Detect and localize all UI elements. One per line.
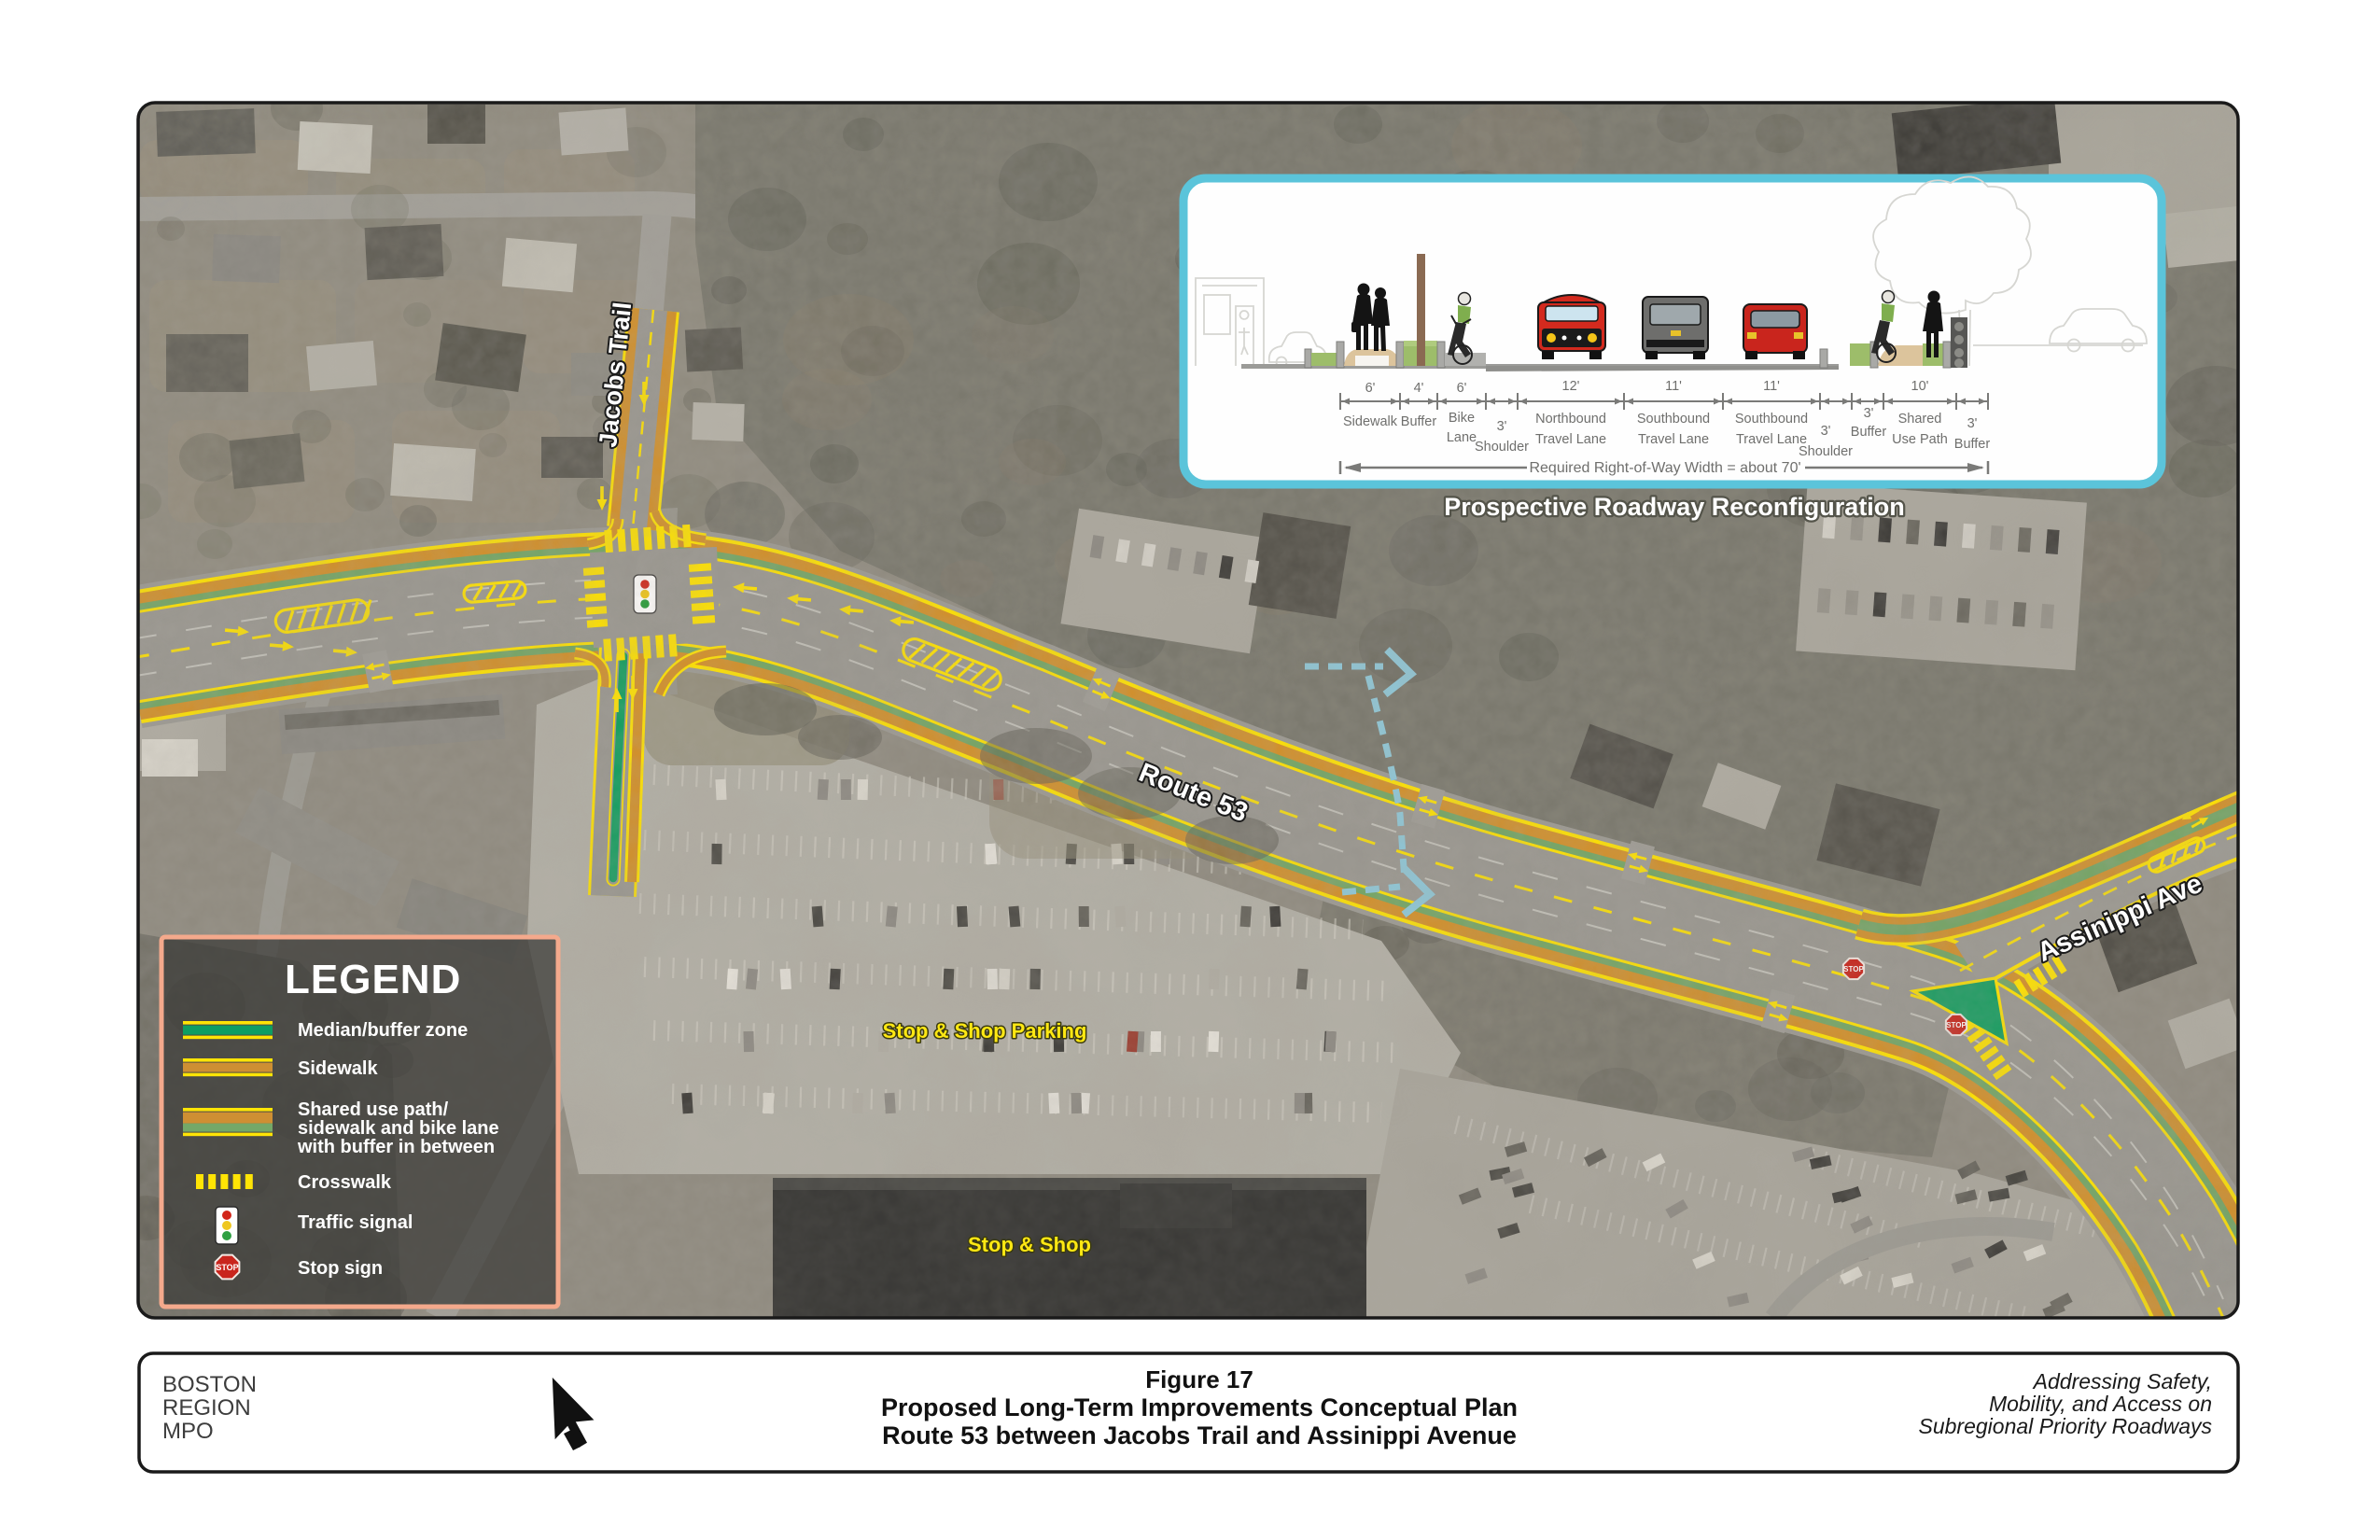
svg-text:Use Path: Use Path bbox=[1892, 432, 1948, 447]
svg-text:LEGEND: LEGEND bbox=[285, 957, 461, 1002]
svg-text:Shared: Shared bbox=[1898, 412, 1942, 427]
svg-text:Shoulder: Shoulder bbox=[1799, 444, 1853, 459]
svg-text:Stop & Shop: Stop & Shop bbox=[968, 1233, 1091, 1256]
svg-text:Northbound: Northbound bbox=[1535, 412, 1606, 427]
svg-text:Mobility, and Access on: Mobility, and Access on bbox=[1989, 1392, 2212, 1416]
svg-text:MPO: MPO bbox=[162, 1419, 214, 1444]
svg-text:Shared use path/: Shared use path/ bbox=[298, 1099, 449, 1120]
svg-text:10': 10' bbox=[1911, 379, 1929, 394]
svg-text:Subregional Priority Roadways: Subregional Priority Roadways bbox=[1919, 1414, 2213, 1438]
svg-text:3': 3' bbox=[1864, 406, 1874, 421]
svg-text:with buffer in between: with buffer in between bbox=[297, 1137, 495, 1157]
svg-text:Southbound: Southbound bbox=[1637, 412, 1710, 427]
svg-text:4': 4' bbox=[1414, 381, 1424, 396]
svg-text:Buffer: Buffer bbox=[1401, 414, 1437, 429]
svg-text:STOP: STOP bbox=[216, 1263, 238, 1272]
svg-text:Lane: Lane bbox=[1447, 430, 1477, 445]
svg-text:Shoulder: Shoulder bbox=[1475, 440, 1529, 455]
svg-text:Median/buffer zone: Median/buffer zone bbox=[298, 1020, 468, 1041]
svg-text:BOSTON: BOSTON bbox=[162, 1372, 257, 1397]
svg-text:6': 6' bbox=[1365, 381, 1376, 396]
svg-text:Bike: Bike bbox=[1449, 411, 1475, 426]
svg-text:Buffer: Buffer bbox=[1851, 425, 1887, 440]
svg-text:12': 12' bbox=[1562, 379, 1580, 394]
svg-text:REGION: REGION bbox=[162, 1395, 251, 1421]
svg-text:Stop sign: Stop sign bbox=[298, 1258, 383, 1279]
svg-text:3': 3' bbox=[1497, 419, 1507, 434]
svg-text:sidewalk and bike lane: sidewalk and bike lane bbox=[298, 1118, 499, 1139]
svg-text:11': 11' bbox=[1665, 379, 1682, 394]
svg-text:Southbound: Southbound bbox=[1735, 412, 1808, 427]
svg-text:Stop & Shop Parking: Stop & Shop Parking bbox=[883, 1019, 1087, 1043]
svg-text:Proposed Long-Term Improvement: Proposed Long-Term Improvements Conceptu… bbox=[881, 1393, 1518, 1421]
svg-text:6': 6' bbox=[1457, 381, 1467, 396]
svg-text:Required Right-of-Way Width =: Required Right-of-Way Width = about 70' bbox=[1529, 460, 1800, 476]
svg-text:Buffer: Buffer bbox=[1954, 437, 1991, 452]
svg-text:Traffic signal: Traffic signal bbox=[298, 1212, 413, 1233]
svg-text:Sidewalk: Sidewalk bbox=[298, 1058, 378, 1079]
svg-text:3': 3' bbox=[1967, 416, 1978, 431]
svg-text:Travel Lane: Travel Lane bbox=[1638, 432, 1709, 447]
svg-text:Crosswalk: Crosswalk bbox=[298, 1172, 392, 1193]
svg-text:3': 3' bbox=[1821, 424, 1831, 439]
svg-text:11': 11' bbox=[1763, 379, 1780, 394]
svg-text:Travel Lane: Travel Lane bbox=[1535, 432, 1606, 447]
svg-text:Route 53 between Jacobs Trail: Route 53 between Jacobs Trail and Assini… bbox=[882, 1421, 1517, 1449]
svg-text:Travel Lane: Travel Lane bbox=[1736, 432, 1807, 447]
svg-text:Addressing Safety,: Addressing Safety, bbox=[2032, 1369, 2212, 1393]
svg-text:Figure 17: Figure 17 bbox=[1145, 1365, 1253, 1393]
svg-text:Prospective Roadway Reconfigur: Prospective Roadway Reconfiguration bbox=[1444, 493, 1905, 521]
svg-text:Sidewalk: Sidewalk bbox=[1343, 414, 1398, 429]
